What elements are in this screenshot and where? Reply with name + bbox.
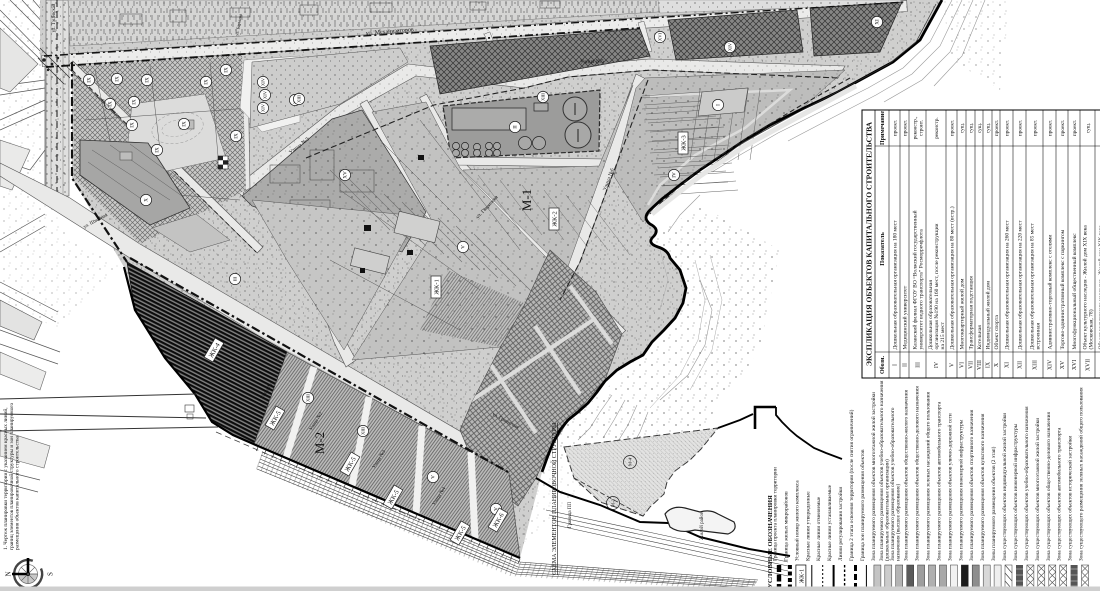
svg-text:Зона планируемого размещения и: Зона планируемого размещения инженерной … [957,419,964,561]
svg-text:встроенная: встроенная [1036,322,1042,349]
svg-text:XI: XI [875,19,881,25]
svg-text:Красные линии отменяемые: Красные линии отменяемые [816,496,822,561]
svg-text:Граница проекта планировки тер: Граница проекта планировки территории [773,467,779,561]
svg-text:XVI: XVI [1072,360,1078,370]
svg-text:III: III [916,362,922,368]
svg-text:сущ.: сущ. [969,123,975,133]
svg-text:Дошкольная образовательная орг: Дошкольная образовательная организация н… [1004,220,1011,350]
svg-text:XIII: XIII [306,394,311,402]
svg-text:сущ.: сущ. [960,123,966,133]
svg-text:Зона планируемого размещения о: Зона планируемого размещения объектов сп… [968,409,975,561]
svg-text:СХЕМА ЭЛЕМЕНТОВ ПЛАНИРОВОЧНОЙ: СХЕМА ЭЛЕМЕНТОВ ПЛАНИРОВОЧНОЙ СТРУКТУРЫ [550,422,558,575]
svg-text:Многоквартирный жилой дом: Многоквартирный жилой дом [959,278,966,349]
svg-text:III: III [233,276,238,281]
svg-text:VII: VII [969,361,975,369]
svg-text:реконстр.: реконстр. [934,117,940,139]
svg-text:Дошкольная образовательная орг: Дошкольная образовательная организация н… [1017,220,1024,350]
svg-text:Дошкольная образовательная: Дошкольная образовательная [927,280,934,350]
svg-text:Котельная: Котельная [977,325,983,350]
svg-text:XIII: XIII [361,427,366,435]
svg-text:Зона планируемого размещения о: Зона планируемого размещения объектов об… [903,389,910,561]
svg-text:XI: XI [1005,362,1011,368]
svg-text:Зона существующих объектов инж: Зона существующих объектов инженерной ин… [1012,423,1019,561]
svg-text:Жилой район: Жилой район [700,511,705,540]
svg-text:университет водного транспорта: университет водного транспорта” Росморре… [918,229,925,350]
svg-text:IX: IX [986,361,992,368]
svg-text:Обозн.: Обозн. [879,356,886,374]
svg-text:Зона существующих объектов инд: Зона существующих объектов индивидуально… [1001,413,1008,561]
svg-text:X: X [144,198,150,202]
svg-text:IX: IX [224,67,230,73]
svg-text:Многофункциональный общественн: Многофункциональный общественный комплек… [1071,233,1078,350]
svg-text:сущ.: сущ. [977,123,983,133]
svg-text:Торгово-административный компл: Торгово-административный комплекс с парк… [1059,229,1066,349]
svg-text:М-1: М-1 [519,189,534,211]
svg-text:XVI: XVI [658,32,663,41]
svg-text:IX: IX [234,133,240,139]
svg-text:XIV: XIV [728,42,733,51]
svg-text:ЖК-3: ЖК-3 [680,135,687,151]
svg-text:М-3: М-3 [611,498,616,507]
svg-text:проект.: проект. [1033,120,1039,136]
svg-text:XIV: XIV [261,103,266,112]
svg-text:Административно-торговый компл: Административно-торговый комплекс с отел… [1047,235,1054,350]
svg-text:XIV: XIV [261,77,266,86]
svg-text:IX: IX [155,147,161,153]
svg-text:I: I [716,104,722,106]
svg-text:проект.: проект. [1018,120,1024,136]
svg-text:Улица №5: Улица №5 [580,59,604,66]
svg-text:Зона планируемого размещения о: Зона планируемого размещения объектов мн… [870,392,877,561]
svg-text:XIII: XIII [297,95,302,103]
svg-text:V: V [461,245,467,249]
svg-text:проект.: проект. [1072,120,1078,136]
svg-text:Зона планируемого размещения о: Зона планируемого размещения объектов ул… [946,413,953,561]
svg-text:Зона существующих объектов уче: Зона существующих объектов учебно-образо… [1023,406,1030,561]
svg-text:ЖК-2: ЖК-2 [551,211,558,227]
svg-text:IV: IV [934,361,940,368]
svg-text:IX: IX [130,122,136,128]
svg-text:IX: IX [145,77,151,83]
svg-text:проект.: проект. [1060,120,1066,136]
svg-text:Зона существующих объектов общ: Зона существующих объектов общественно-д… [1045,412,1052,561]
svg-text:Зона планируемого размещения о: Зона планируемого размещения объектов ку… [979,413,986,561]
svg-text:Зона планируемого размещения з: Зона планируемого размещения зеленых нас… [925,391,932,561]
svg-text:VI: VI [960,362,966,368]
svg-text:I: I [893,364,899,366]
svg-text:Зона существующих объектов ист: Зона существующих объектов исторической … [1067,436,1074,561]
svg-text:проект.: проект. [1048,120,1054,136]
svg-text:IX: IX [87,77,93,83]
svg-text:Зона планируемого размещения о: Зона планируемого размещения объектов об… [914,386,921,561]
svg-text:Показатель: Показатель [879,232,886,266]
svg-text:Индивидуальный жилой дом: Индивидуальный жилой дом [985,281,992,350]
svg-text:XIV: XIV [263,90,268,99]
svg-text:XVII: XVII [1086,359,1092,371]
svg-text:ЖК-1: ЖК-1 [799,569,805,583]
svg-text:проект.: проект. [903,120,909,136]
svg-text:Граница зон планируемого разме: Граница зон планируемого размещения объе… [859,449,866,561]
svg-text:XV: XV [343,171,349,179]
svg-text:(Московская, 78): (Московская, 78) [1088,309,1095,349]
svg-text:V: V [431,475,437,479]
svg-text:II: II [903,363,909,367]
svg-text:IX: IX [115,76,121,82]
svg-text:Зона существующих объектов мно: Зона существующих объектов многоэтажной … [1034,418,1041,561]
svg-text:Дошкольная образовательная орг: Дошкольная образовательная организация н… [1029,223,1036,350]
svg-text:Зона существующих объектов авт: Зона существующих объектов автомобильног… [1056,427,1063,561]
svg-text:Дошкольная образовательная орг: Дошкольная образовательная организация н… [892,220,899,350]
svg-text:ЭКСПЛИКАЦИЯ ОБЪЕКТОВ КАПИТАЛЬН: ЭКСПЛИКАЦИЯ ОБЪЕКТОВ КАПИТАЛЬНОГО СТРОИТ… [865,121,874,366]
svg-text:проект.: проект. [1005,120,1011,136]
svg-text:проект.: проект. [950,120,956,136]
svg-text:Граница ПП: Граница ПП [568,502,573,528]
svg-text:IX: IX [182,121,188,127]
svg-text:N: N [5,571,13,576]
svg-text:размещения объектов капитально: размещения объектов капитального строите… [14,435,21,550]
svg-text:строит.: строит. [919,120,925,136]
svg-text:ЖК-1: ЖК-1 [433,279,440,295]
svg-text:IX: IX [204,79,210,85]
svg-text:Условный номер жилого комплекс: Условный номер жилого комплекса [793,480,800,561]
svg-text:XV: XV [1060,360,1066,369]
svg-text:проект.: проект. [893,120,899,136]
svg-text:Трансформаторная подстанция: Трансформаторная подстанция [968,276,975,350]
svg-text:сущ.: сущ. [986,123,992,133]
svg-text:Линии регулирования застройки: Линии регулирования застройки [837,487,844,561]
svg-text:Красные линии устанавливаемые: Красные линии устанавливаемые [827,484,833,561]
svg-text:Зоны планируемого размещения о: Зоны планируемого размещения объектов (2… [990,446,997,561]
svg-text:S: S [47,572,55,576]
svg-text:Граница 2 этапа освоения терри: Граница 2 этапа освоения территории (пос… [848,409,855,561]
svg-text:Зона планируемого размещения о: Зона планируемого размещения объектов ав… [936,401,943,561]
svg-text:Объект спорта: Объект спорта [993,315,1000,350]
svg-text:Граница жилых микрорайонов: Граница жилых микрорайонов [782,491,789,561]
svg-text:XIV: XIV [1048,359,1054,370]
svg-text:назначения (высшее образование: назначения (высшее образование) [894,484,901,561]
svg-text:Медицинский университет: Медицинский университет [902,285,909,349]
svg-text:на 215 мест: на 215 мест [940,321,946,349]
svg-text:Зона существующего размещения: Зона существующего размещения зеленых на… [1078,387,1085,561]
svg-text:IV: IV [672,172,678,178]
svg-text:М-2: М-2 [312,432,327,454]
svg-text:Казанский филиал ФГОУ ВО “Волж: Казанский филиал ФГОУ ВО “Волжский госуд… [912,210,919,349]
svg-text:XIII: XIII [1033,360,1039,370]
svg-text:XII: XII [1018,361,1024,369]
svg-text:Объект культурного наследия -: Объект культурного наследия - Жилой дом … [1082,225,1089,350]
svg-text:IX: IX [132,99,138,105]
svg-text:VIII: VIII [977,360,983,370]
svg-text:Примечание: Примечание [880,111,886,145]
svg-text:Дошкольная образовательная орг: Дошкольная образовательная организация н… [949,206,956,349]
svg-text:XIII: XIII [541,93,546,101]
svg-text:М-4: М-4 [628,457,633,466]
svg-text:проект.: проект. [994,120,1000,136]
svg-text:Красные линии утвержденные: Красные линии утвержденные [805,491,811,561]
svg-text:сущ.: сущ. [1086,123,1092,133]
svg-text:II: II [513,125,519,129]
svg-text:ул. Тэцевская: ул. Тэцевская [52,3,57,32]
